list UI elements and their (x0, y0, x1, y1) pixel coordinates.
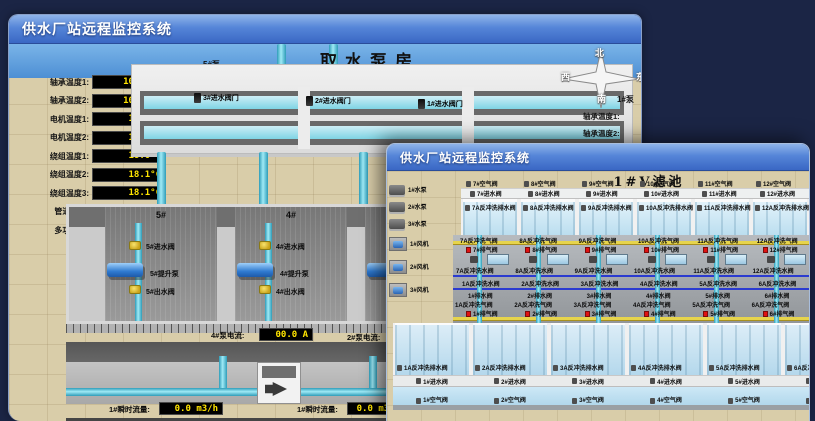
clear-water-tank (784, 254, 806, 265)
outlet-stub-pipe (219, 356, 227, 392)
air-valve-icon[interactable] (524, 181, 529, 187)
intake-valve-label: 1#进水阀门 (427, 99, 463, 109)
clear-water-tank (547, 254, 569, 265)
air-valve-label: 1#空气阀 (423, 395, 448, 404)
valve-label: 6#排水阀 (765, 291, 790, 300)
filter-unit-lower[interactable]: 5A反冲洗排水阀 5#进水阀 5#空气阀 (705, 323, 783, 405)
valve-label: 11A反冲洗水阀 (693, 266, 734, 275)
inlet-valve-row: 11#进水阀 (693, 188, 751, 199)
gallery-valve-column: 12A反冲洗气阀 12#排气阀 12A反冲洗水阀 6A反冲洗水阀 6#排水阀 6… (750, 235, 809, 323)
filter-pool-frame: 8A反冲洗排水阀 (519, 199, 577, 237)
valve-label: 10#排气阀 (651, 245, 679, 254)
backwash-water-valve[interactable]: 2A反冲洗水阀 (521, 279, 559, 288)
air-valve-label: 3#空气阀 (579, 395, 604, 404)
valve-label: 9A反冲洗水阀 (575, 266, 613, 275)
compass-north: 北 (595, 46, 604, 59)
valve-label: 4A反冲洗气阀 (633, 300, 671, 309)
air-valve-row: 1#空气阀 (393, 387, 471, 405)
air-valve-label: 10#空气阀 (647, 179, 675, 188)
blower-icon (389, 237, 407, 251)
drain-valve-icon[interactable] (465, 205, 470, 211)
valve-actuator-icon[interactable] (767, 256, 775, 263)
drain-valve-icon[interactable] (709, 365, 714, 371)
alarm-valve-icon (763, 247, 768, 253)
filter-unit-upper[interactable]: 8#空气阀 8#进水阀 8A反冲洗排水阀 (519, 179, 577, 237)
filter-pool-frame: 3A反冲洗排水阀 (549, 323, 627, 375)
wash-pump[interactable]: 2#水泵 (389, 198, 461, 215)
exhaust-valve[interactable]: 9#排气阀 (585, 245, 617, 254)
inlet-valve-label: 10#进水阀 (651, 189, 679, 198)
front-window-titlebar[interactable]: 供水厂站远程监控系统 (387, 144, 809, 171)
drain-valve-label: 10A反冲洗排水阀 (646, 203, 693, 212)
air-valve-row: 3#空气阀 (549, 387, 627, 405)
exhaust-valve[interactable]: 2#排气阀 (525, 309, 557, 318)
valve-label: 1A反冲洗水阀 (462, 279, 500, 288)
air-valve-label: 2#空气阀 (501, 395, 526, 404)
backwash-water-valve[interactable]: 9A反冲洗水阀 (575, 266, 613, 275)
valve-label: 3#排水阀 (587, 291, 612, 300)
inlet-valve-icon[interactable] (760, 191, 765, 197)
drain-valve-label: 12A反冲洗排水阀 (762, 203, 809, 212)
alarm-valve-icon (703, 247, 708, 253)
inlet-valve-icon[interactable] (470, 191, 475, 197)
inlet-valve-icon[interactable] (644, 191, 649, 197)
valve-label: 3A反冲洗水阀 (581, 279, 619, 288)
air-valve-row: 8#空气阀 (519, 179, 577, 188)
valve-actuator-icon[interactable] (707, 256, 715, 263)
exhaust-valve[interactable]: 1#排气阀 (466, 309, 498, 318)
compass-west: 西 (561, 70, 570, 83)
backwash-water-valve[interactable]: 7A反冲洗水阀 (456, 266, 494, 275)
inlet-valve-label: 11#进水阀 (709, 189, 737, 198)
drain-valve-row: 8A反冲洗排水阀 (523, 203, 577, 212)
drain-valve-icon[interactable] (553, 365, 558, 371)
drain-valve[interactable]: 3#排水阀 (587, 291, 612, 300)
exhaust-valve[interactable]: 7#排气阀 (466, 245, 498, 254)
intake-valve-label: 2#进水阀门 (315, 96, 351, 106)
backwash-air-valve[interactable]: 2A反冲洗气阀 (514, 300, 552, 309)
valve-label: 3A反冲洗气阀 (574, 300, 612, 309)
air-valve-label: 5#空气阀 (735, 395, 760, 404)
drain-valve-label: 8A反冲洗排水阀 (530, 203, 574, 212)
valve-label: 7A反冲洗水阀 (456, 266, 494, 275)
drain-valve-row: 2A反冲洗排水阀 (475, 363, 526, 372)
inlet-valve-icon[interactable] (806, 378, 809, 384)
air-valve-row: 11#空气阀 (693, 179, 751, 188)
drain-valve-icon[interactable] (787, 365, 792, 371)
inlet-valve-label: 9#进水阀 (593, 189, 618, 198)
reading-label: 绕组温度1: (25, 151, 89, 162)
backwash-air-valve[interactable]: 10A反冲洗气阀 (638, 236, 679, 245)
outlet-valve-icon[interactable] (129, 285, 141, 294)
drain-valve-row: 3A反冲洗排水阀 (553, 363, 604, 372)
current-label: 4#泵电流: (211, 330, 244, 341)
air-valve-icon[interactable] (466, 181, 471, 187)
valve-actuator-icon[interactable] (648, 256, 656, 263)
outlet-valve-label: 4#出水阀 (276, 287, 305, 297)
filter-unit-upper[interactable]: 10#空气阀 10#进水阀 10A反冲洗排水阀 (635, 179, 693, 237)
blower-icon (389, 260, 407, 274)
alarm-valve-icon (525, 247, 530, 253)
filter-pool-water: 12A反冲洗排水阀 (753, 199, 807, 237)
valve-label: 12A反冲洗水阀 (753, 266, 794, 275)
valve-label: 2A反冲洗水阀 (521, 279, 559, 288)
drain-valve-icon[interactable] (523, 205, 528, 211)
inlet-valve-row: 8#进水阀 (519, 188, 577, 199)
filter-unit-lower[interactable]: 6A反冲洗排水阀 6#进水阀 6#空气阀 (783, 323, 809, 405)
backwash-air-valve[interactable]: 6A反冲洗气阀 (752, 300, 790, 309)
exhaust-valve[interactable]: 5#排气阀 (703, 309, 735, 318)
reading-value: 18.1°C (92, 168, 166, 182)
filter-scene: 1#V滤池 1#水泵 2#水泵 3#水泵 (387, 171, 809, 421)
backwash-air-valve[interactable]: 5A反冲洗气阀 (692, 300, 730, 309)
intake-gate-valve[interactable]: 3#进水阀门 (194, 93, 239, 103)
air-valve-icon[interactable] (650, 398, 655, 404)
inlet-valve-label: 5#进水阀 (146, 242, 175, 252)
drain-valve-label: 9A反冲洗排水阀 (588, 203, 632, 212)
valve-label: 8A反冲洗气阀 (519, 236, 557, 245)
alarm-valve-icon (644, 247, 649, 253)
drain-valve-label: 1A反冲洗排水阀 (404, 363, 448, 372)
filter-pool-frame: 7A反冲洗排水阀 (461, 199, 519, 237)
alarm-valve-icon (585, 247, 590, 253)
intake-gate-valve[interactable]: 1#进水阀门 (418, 99, 463, 109)
valve-label: 11#排气阀 (710, 245, 738, 254)
air-valve-row: 12#空气阀 (751, 179, 809, 188)
air-blower[interactable]: 2#风机 (389, 255, 461, 278)
air-valve-icon[interactable] (582, 181, 587, 187)
drain-valve[interactable]: 6#排水阀 (765, 291, 790, 300)
alarm-valve-icon (525, 311, 530, 317)
inlet-valve-label: 5#进水阀 (735, 377, 760, 386)
backwash-water-valve[interactable]: 12A反冲洗水阀 (753, 266, 794, 275)
filter-pool-frame: 12A反冲洗排水阀 (751, 199, 809, 237)
alarm-valve-icon (466, 247, 471, 253)
reading-label: 轴承温度2: (25, 95, 89, 106)
alarm-valve-icon (644, 311, 649, 317)
inlet-valve-icon[interactable] (702, 191, 707, 197)
inlet-valve-row: 9#进水阀 (577, 188, 635, 199)
lift-pump[interactable] (237, 263, 273, 277)
inlet-valve-icon[interactable] (572, 378, 577, 384)
filter-pool-frame: 5A反冲洗排水阀 (705, 323, 783, 375)
clear-water-tank (606, 254, 628, 265)
air-blower[interactable]: 3#风机 (389, 278, 461, 301)
backwash-air-valve[interactable]: 3A反冲洗气阀 (574, 300, 612, 309)
backwash-air-valve[interactable]: 8A反冲洗气阀 (519, 236, 557, 245)
drain-valve-label: 3A反冲洗排水阀 (560, 363, 604, 372)
drain-valve-row: 6A反冲洗排水阀 (787, 363, 809, 372)
valve-actuator-icon[interactable] (589, 256, 597, 263)
valve-label: 12A反冲洗气阀 (757, 236, 798, 245)
valve-label: 9#排气阀 (592, 245, 617, 254)
inlet-valve-row: 2#进水阀 (471, 375, 549, 387)
air-blower[interactable]: 1#风机 (389, 232, 461, 255)
filter-pool-frame: 11A反冲洗排水阀 (693, 199, 751, 237)
sensor-reading-row: 绕组温度2: 18.1°C (25, 168, 175, 182)
exhaust-valve[interactable]: 11#排气阀 (703, 245, 738, 254)
air-valve-label: 9#空气阀 (589, 179, 614, 188)
reading-value: 18.1°C (92, 186, 166, 200)
blower-icon (389, 283, 407, 297)
air-valve-icon[interactable] (572, 398, 577, 404)
valve-label: 3#排气阀 (592, 309, 617, 318)
valve-label: 9A反冲洗气阀 (579, 236, 617, 245)
drain-valve[interactable]: 5#排水阀 (705, 291, 730, 300)
exhaust-valve[interactable]: 8#排气阀 (525, 245, 557, 254)
window-v-filter-pool[interactable]: 供水厂站远程监控系统 1#V滤池 1#水泵 2#水泵 3#水泵 (386, 143, 810, 421)
flow-label: 1#瞬时流量: (297, 404, 338, 415)
inlet-valve-icon[interactable] (416, 378, 421, 384)
valve-label: 6#排气阀 (770, 309, 795, 318)
intake-gate-valve[interactable]: 2#进水阀门 (306, 96, 351, 106)
air-valve-icon[interactable] (494, 398, 499, 404)
air-valve-row: 9#空气阀 (577, 179, 635, 188)
outlet-stub-pipe (369, 356, 377, 392)
inlet-valve-icon[interactable] (129, 241, 141, 250)
valve-label: 4A反冲洗水阀 (640, 279, 678, 288)
outlet-valve-icon[interactable] (259, 285, 271, 294)
current-value: 00.0 A (259, 328, 313, 341)
inlet-valve-label: 7#进水阀 (477, 189, 502, 198)
drain-valve-icon[interactable] (697, 205, 702, 211)
drain-valve[interactable]: 1#排水阀 (468, 291, 493, 300)
desktop: 供水厂站远程监控系统 取水泵房 5#泵 轴承温度1: 100.0°C 轴承温度2… (0, 0, 815, 420)
valve-label: 5#排水阀 (705, 291, 730, 300)
inlet-valve-label: 4#进水阀 (657, 377, 682, 386)
wash-pump[interactable]: 3#水泵 (389, 215, 461, 232)
valve-label: 10A反冲洗气阀 (638, 236, 679, 245)
flow-meter-icon (265, 382, 287, 396)
alarm-valve-icon (466, 311, 471, 317)
reading-label: 电机温度1: (25, 114, 89, 125)
air-valve-icon[interactable] (756, 181, 761, 187)
feed-pipe (359, 152, 368, 206)
clear-water-tank (725, 254, 747, 265)
front-window-title: 供水厂站远程监控系统 (400, 149, 530, 166)
air-valve-row: 2#空气阀 (471, 387, 549, 405)
exhaust-valve[interactable]: 12#排气阀 (763, 245, 798, 254)
valve-actuator-icon[interactable] (470, 256, 478, 263)
backwash-water-valve[interactable]: 1A反冲洗水阀 (462, 279, 500, 288)
filter-pool-water: 11A反冲洗排水阀 (695, 199, 749, 237)
pump-label: 1#水泵 (408, 185, 427, 194)
reading-label: 绕组温度2: (25, 169, 89, 180)
drain-valve-icon[interactable] (755, 205, 760, 211)
feed-pipe (259, 152, 268, 206)
reading-label: 轴承温度1: (25, 77, 89, 88)
inlet-valve-row: 6#进水阀 (783, 375, 809, 387)
drain-valve-row: 9A反冲洗排水阀 (581, 203, 635, 212)
valve-actuator-icon[interactable] (529, 256, 537, 263)
inlet-valve-row: 7#进水阀 (461, 188, 519, 199)
valve-label: 5A反冲洗气阀 (692, 300, 730, 309)
backwash-water-valve[interactable]: 4A反冲洗水阀 (640, 279, 678, 288)
inlet-valve-icon[interactable] (494, 378, 499, 384)
air-valve-icon[interactable] (728, 398, 733, 404)
air-valve-icon[interactable] (640, 181, 645, 187)
flow-value: 0.0 m3/h (159, 402, 223, 415)
inlet-valve-icon[interactable] (528, 191, 533, 197)
drain-valve-icon[interactable] (581, 205, 586, 211)
air-valve-row: 10#空气阀 (635, 179, 693, 188)
air-valve-label: 7#空气阀 (473, 179, 498, 188)
backwash-water-valve[interactable]: 6A反冲洗水阀 (759, 279, 797, 288)
valve-label: 1A反冲洗气阀 (455, 300, 493, 309)
pump-label: 5#提升泵 (150, 269, 179, 279)
filter-unit-upper[interactable]: 9#空气阀 9#进水阀 9A反冲洗排水阀 (577, 179, 635, 237)
clear-water-tank (487, 254, 509, 265)
valve-label: 5#排气阀 (710, 309, 735, 318)
exhaust-valve[interactable]: 6#排气阀 (763, 309, 795, 318)
valve-label: 11A反冲洗气阀 (697, 236, 738, 245)
backwash-water-valve[interactable]: 5A反冲洗水阀 (699, 279, 737, 288)
gallery-valve-column: 10A反冲洗气阀 10#排气阀 10A反冲洗水阀 4A反冲洗水阀 4#排水阀 4… (631, 235, 690, 323)
air-valve-row: 6#空气阀 (783, 387, 809, 405)
valve-label: 7A反冲洗气阀 (460, 236, 498, 245)
valve-label: 8A反冲洗水阀 (515, 266, 553, 275)
valve-label: 10A反冲洗水阀 (634, 266, 675, 275)
flow-meter[interactable] (257, 362, 301, 404)
gallery-valve-column: 7A反冲洗气阀 7#排气阀 7A反冲洗水阀 1A反冲洗水阀 1#排水阀 1A反冲… (453, 235, 512, 323)
filter-unit-upper[interactable]: 7#空气阀 7#进水阀 7A反冲洗排水阀 (461, 179, 519, 237)
air-valve-row: 7#空气阀 (461, 179, 519, 188)
pump-label: 2#水泵 (408, 202, 427, 211)
blower-label: 1#风机 (410, 239, 429, 248)
drain-valve-row: 11A反冲洗排水阀 (697, 203, 751, 212)
filter-pool-frame: 4A反冲洗排水阀 (627, 323, 705, 375)
drain-valve-icon[interactable] (639, 205, 644, 211)
backwash-air-valve[interactable]: 7A反冲洗气阀 (460, 236, 498, 245)
air-valve-icon[interactable] (416, 398, 421, 404)
valve-label: 4#排水阀 (646, 291, 671, 300)
pump-bay: 4# 4#进水阀 4#提升泵 4#出水阀 (235, 207, 347, 321)
drain-valve-row: 1A反冲洗排水阀 (397, 363, 448, 372)
blower-label: 2#风机 (410, 262, 429, 271)
air-valve-label: 8#空气阀 (531, 179, 556, 188)
drain-valve-icon[interactable] (397, 365, 402, 371)
inlet-valve-icon[interactable] (259, 241, 271, 250)
backwash-water-valve[interactable]: 10A反冲洗水阀 (634, 266, 675, 275)
valve-label: 7#排气阀 (473, 245, 498, 254)
wash-pump[interactable]: 1#水泵 (389, 181, 461, 198)
exhaust-valve[interactable]: 4#排气阀 (644, 309, 676, 318)
valve-label: 4#排气阀 (651, 309, 676, 318)
air-valve-icon[interactable] (806, 398, 809, 404)
valve-icon (194, 93, 201, 103)
filter-unit-lower[interactable]: 2A反冲洗排水阀 2#进水阀 2#空气阀 (471, 323, 549, 405)
valve-label: 5A反冲洗水阀 (699, 279, 737, 288)
exhaust-valve[interactable]: 3#排气阀 (585, 309, 617, 318)
bay-number: 4# (235, 210, 347, 220)
drain-valve-row: 12A反冲洗排水阀 (755, 203, 809, 212)
inlet-valve-icon[interactable] (586, 191, 591, 197)
exhaust-valve[interactable]: 10#排气阀 (644, 245, 679, 254)
drain-valve[interactable]: 2#排水阀 (527, 291, 552, 300)
reading-label: 绕组温度3: (25, 188, 89, 199)
inlet-valve-row: 5#进水阀 (705, 375, 783, 387)
bay-number: 5# (105, 210, 217, 220)
flow-meter-display (262, 366, 296, 378)
lift-pump[interactable] (107, 263, 143, 277)
blower-label: 3#风机 (410, 285, 429, 294)
inlet-valve-label: 3#进水阀 (579, 377, 604, 386)
flow-label: 1#瞬时流量: (109, 404, 150, 415)
intake-channel (140, 121, 624, 145)
valve-label: 6A反冲洗水阀 (759, 279, 797, 288)
filter-unit-upper[interactable]: 11#空气阀 11#进水阀 11A反冲洗排水阀 (693, 179, 751, 237)
machine-column: 1#水泵 2#水泵 3#水泵 1#风机 2#风机 (389, 181, 461, 301)
filter-unit-lower[interactable]: 3A反冲洗排水阀 3#进水阀 3#空气阀 (549, 323, 627, 405)
drain-valve-icon[interactable] (475, 365, 480, 371)
drain-valve-label: 11A反冲洗排水阀 (704, 203, 751, 212)
back-window-titlebar[interactable]: 供水厂站远程监控系统 (9, 15, 641, 44)
inlet-valve-icon[interactable] (650, 378, 655, 384)
backwash-air-valve[interactable]: 4A反冲洗气阀 (633, 300, 671, 309)
backwash-air-valve[interactable]: 9A反冲洗气阀 (579, 236, 617, 245)
valve-label: 2#排水阀 (527, 291, 552, 300)
sensor-reading-row: 绕组温度3: 18.1°C (25, 186, 175, 200)
backwash-water-valve[interactable]: 11A反冲洗水阀 (693, 266, 734, 275)
drain-valve-label: 7A反冲洗排水阀 (472, 203, 516, 212)
filter-pool-water: 10A反冲洗排水阀 (637, 199, 691, 237)
valve-icon (418, 99, 425, 109)
clear-water-tank (665, 254, 687, 265)
alarm-valve-icon (763, 311, 768, 317)
backwash-air-valve[interactable]: 12A反冲洗气阀 (757, 236, 798, 245)
drain-valve-label: 5A反冲洗排水阀 (716, 363, 760, 372)
inlet-valve-row: 3#进水阀 (549, 375, 627, 387)
pump-label: 3#水泵 (408, 219, 427, 228)
backwash-air-valve[interactable]: 11A反冲洗气阀 (697, 236, 738, 245)
backwash-water-valve[interactable]: 8A反冲洗水阀 (515, 266, 553, 275)
air-valve-icon[interactable] (698, 181, 703, 187)
drain-valve-icon[interactable] (631, 365, 636, 371)
pump-bay: 5# 5#进水阀 5#提升泵 5#出水阀 (105, 207, 217, 321)
filter-pool-frame: 2A反冲洗排水阀 (471, 323, 549, 375)
filter-unit-lower[interactable]: 4A反冲洗排水阀 4#进水阀 4#空气阀 (627, 323, 705, 405)
reading-label: 轴承温度1: (583, 111, 641, 128)
drain-valve[interactable]: 4#排水阀 (646, 291, 671, 300)
inlet-valve-icon[interactable] (728, 378, 733, 384)
alarm-valve-icon (703, 311, 708, 317)
inlet-valve-label: 12#进水阀 (767, 189, 795, 198)
pump-label: 4#提升泵 (280, 269, 309, 279)
backwash-water-valve[interactable]: 3A反冲洗水阀 (581, 279, 619, 288)
valve-label: 1#排气阀 (473, 309, 498, 318)
backwash-air-valve[interactable]: 1A反冲洗气阀 (455, 300, 493, 309)
inlet-valve-row: 4#进水阀 (627, 375, 705, 387)
valve-label: 2#排气阀 (532, 309, 557, 318)
air-valve-label: 11#空气阀 (705, 179, 733, 188)
filter-unit-lower[interactable]: 1A反冲洗排水阀 1#进水阀 1#空气阀 (393, 323, 471, 405)
inlet-valve-label: 1#进水阀 (423, 377, 448, 386)
pump-icon (389, 202, 405, 212)
valve-label: 6A反冲洗气阀 (752, 300, 790, 309)
air-valve-row: 4#空气阀 (627, 387, 705, 405)
filter-pool-frame: 10A反冲洗排水阀 (635, 199, 693, 237)
inlet-valve-label: 2#进水阀 (501, 377, 526, 386)
filter-unit-upper[interactable]: 12#空气阀 12#进水阀 12A反冲洗排水阀 (751, 179, 809, 237)
gallery-valve-column: 9A反冲洗气阀 9#排气阀 9A反冲洗水阀 3A反冲洗水阀 3#排水阀 3A反冲… (572, 235, 631, 323)
filter-pool-frame: 9A反冲洗排水阀 (577, 199, 635, 237)
filter-pool-frame: 6A反冲洗排水阀 (783, 323, 809, 375)
air-valve-label: 12#空气阀 (763, 179, 791, 188)
inlet-valve-label: 8#进水阀 (535, 189, 560, 198)
air-valve-row: 5#空气阀 (705, 387, 783, 405)
valve-label: 8#排气阀 (532, 245, 557, 254)
feed-pipe (157, 152, 166, 206)
